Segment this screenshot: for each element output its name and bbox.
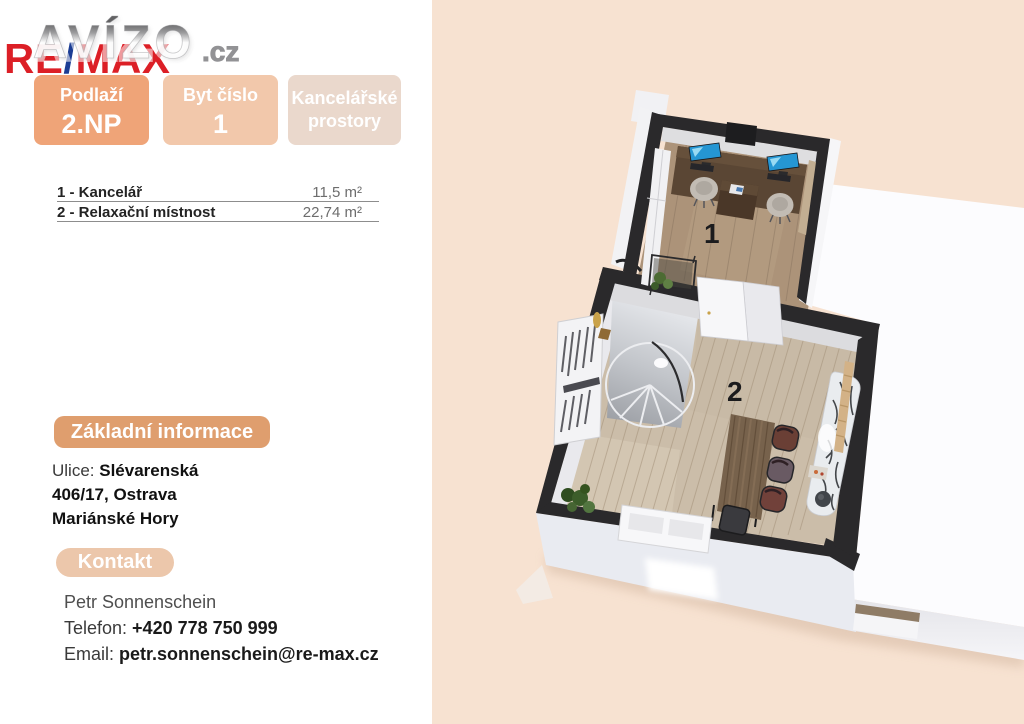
svg-text:2: 2 [727,376,743,407]
svg-text:.cz: .cz [202,36,239,67]
svg-text:AVÍZO: AVÍZO [33,15,196,68]
svg-text:1: 1 [704,218,720,249]
